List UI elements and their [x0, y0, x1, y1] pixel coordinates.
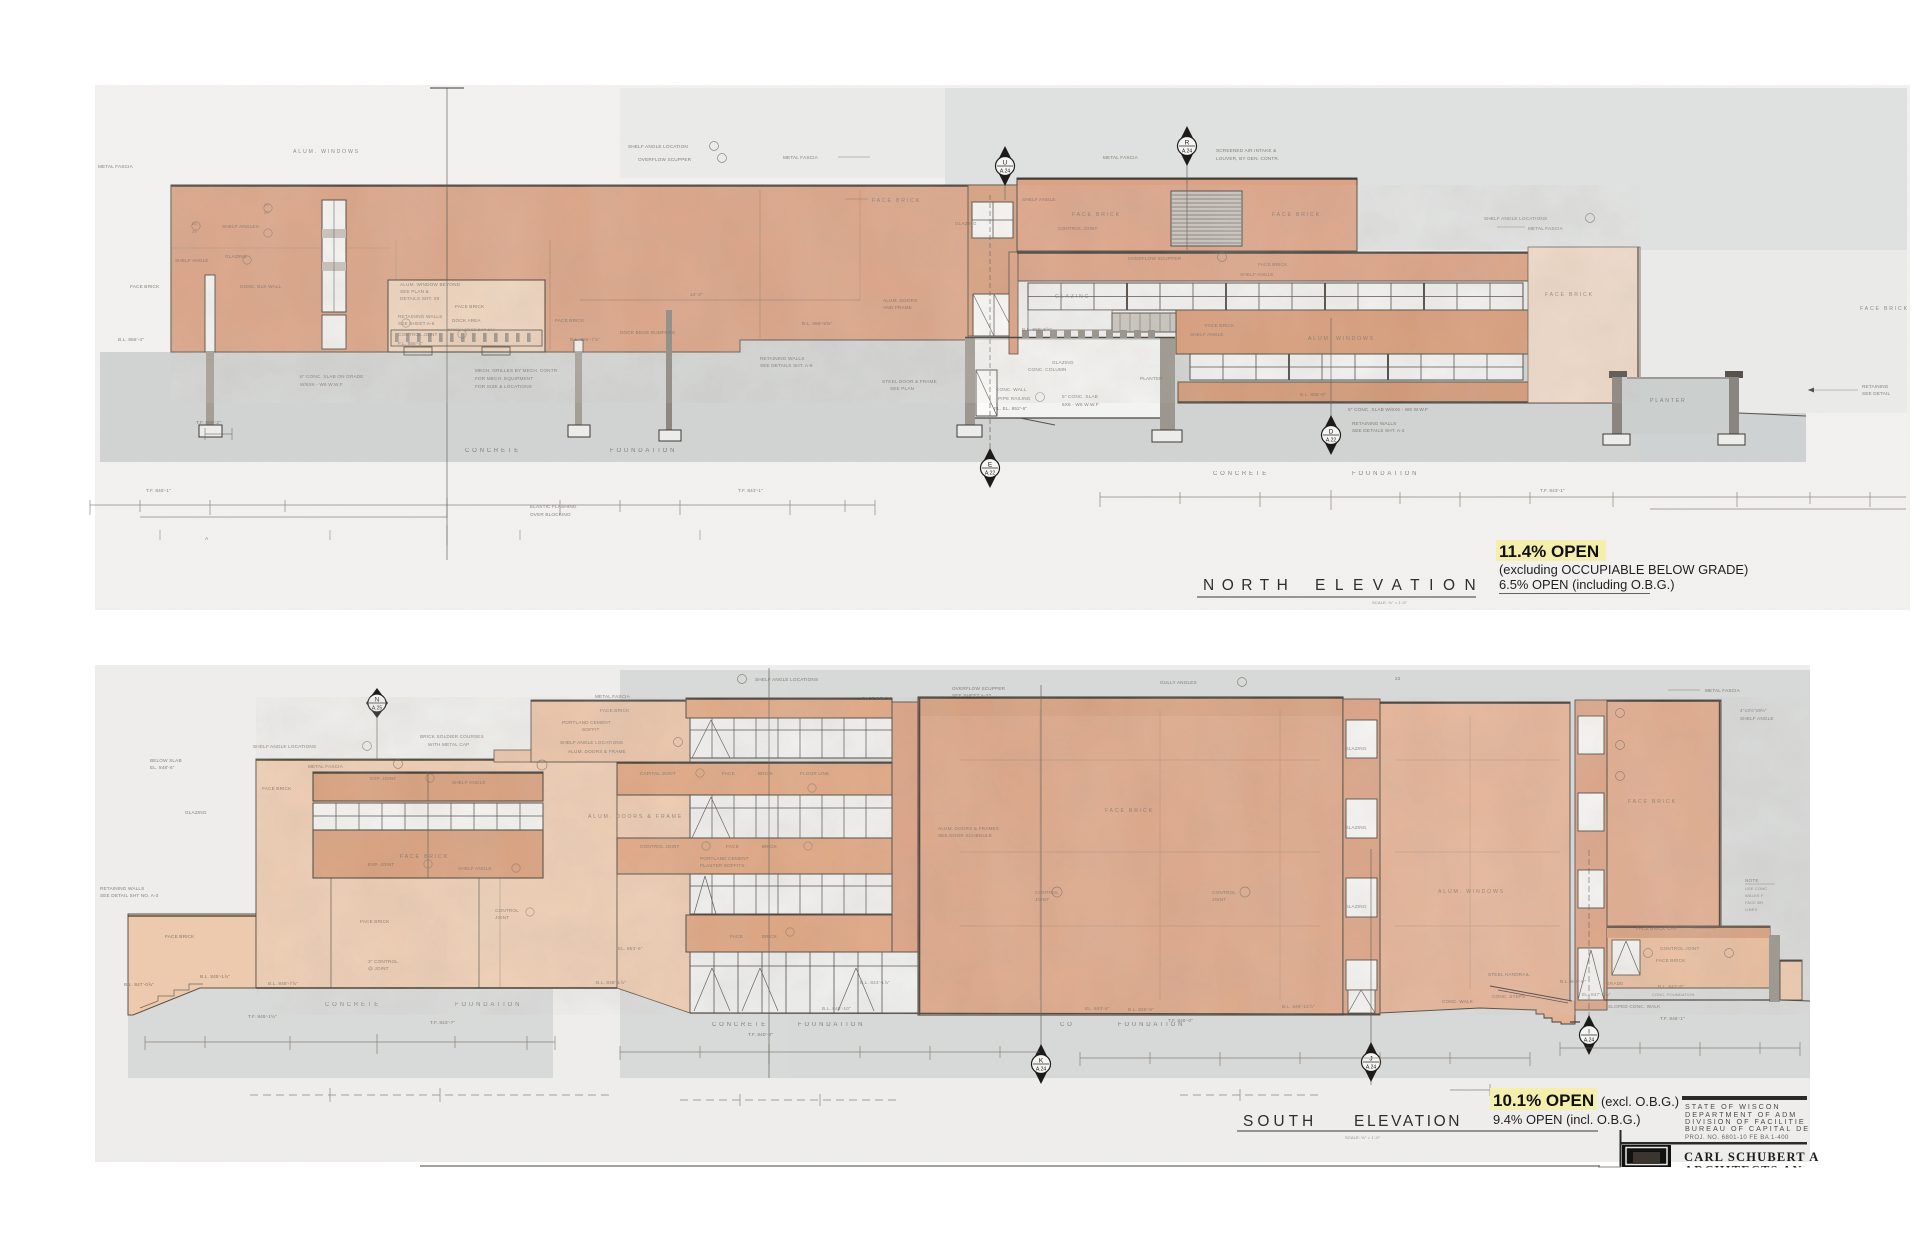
svg-text:T.F. 846'-0": T.F. 846'-0": [1168, 1018, 1193, 1023]
svg-text:FACE BRICK: FACE BRICK: [1272, 212, 1321, 218]
svg-text:A.22: A.22: [985, 471, 996, 477]
svg-text:ALUM. DOORS & FRAMES: ALUM. DOORS & FRAMES: [938, 826, 999, 831]
svg-text:FOUNDATION: FOUNDATION: [798, 1022, 865, 1028]
svg-text:B.L. 848'-1⅞": B.L. 848'-1⅞": [596, 980, 626, 985]
svg-text:@ JOINT: @ JOINT: [368, 966, 389, 971]
svg-text:A.24: A.24: [1000, 169, 1011, 175]
svg-text:GLAZING: GLAZING: [1345, 825, 1367, 830]
svg-text:GLAZING: GLAZING: [1345, 746, 1367, 751]
svg-text:PORTLAND CEMENT: PORTLAND CEMENT: [700, 856, 749, 861]
svg-text:GLAZING: GLAZING: [225, 254, 247, 259]
svg-text:BRICK SOLDIER COURSES: BRICK SOLDIER COURSES: [420, 734, 484, 739]
svg-text:SEE DOOR SCHEDULE: SEE DOOR SCHEDULE: [938, 833, 992, 838]
svg-text:SEE PLAN &: SEE PLAN &: [400, 289, 430, 294]
svg-text:B.L. 845'-0": B.L. 845'-0": [1560, 979, 1586, 984]
svg-text:CONCRETE: CONCRETE: [1213, 471, 1269, 477]
svg-text:T.F. 843'-1": T.F. 843'-1": [738, 488, 763, 493]
svg-text:BELOW SLAB: BELOW SLAB: [150, 758, 182, 763]
svg-text:FACE BRICK: FACE BRICK: [862, 696, 892, 701]
svg-text:RETAINING WALLS: RETAINING WALLS: [100, 886, 144, 891]
svg-text:ALUM. WINDOW BEYOND: ALUM. WINDOW BEYOND: [400, 282, 461, 287]
svg-text:CONCRETE: CONCRETE: [465, 448, 521, 454]
svg-text:RETAINING WALLS: RETAINING WALLS: [760, 356, 804, 361]
svg-text:9.4% OPEN (incl. O.B.G.): 9.4% OPEN (incl. O.B.G.): [1493, 1112, 1641, 1127]
svg-text:(excl. O.B.G.): (excl. O.B.G.): [1601, 1094, 1679, 1109]
svg-text:NORTH: NORTH: [1203, 577, 1295, 594]
svg-text:T.F. 855'-2": T.F. 855'-2": [196, 420, 221, 425]
svg-text:EXP. JOINT: EXP. JOINT: [370, 776, 396, 781]
svg-text:SHELF ANGLE: SHELF ANGLE: [458, 866, 492, 871]
svg-text:25: 25: [264, 202, 269, 207]
svg-text:CONC. STEPS: CONC. STEPS: [1492, 994, 1525, 999]
svg-text:SEE SHEET A-22: SEE SHEET A-22: [952, 693, 992, 698]
svg-text:STEEL HANDRAIL: STEEL HANDRAIL: [1488, 972, 1530, 977]
svg-text:BRICK: BRICK: [762, 844, 778, 849]
svg-text:FACE BRICK: FACE BRICK: [455, 304, 485, 309]
svg-text:SHELF ANGLE: SHELF ANGLE: [1240, 272, 1274, 277]
svg-text:RETAINING WALLS: RETAINING WALLS: [398, 314, 442, 319]
svg-text:FACE BRICK: FACE BRICK: [600, 708, 630, 713]
svg-text:OVERFLOW SCUPPER: OVERFLOW SCUPPER: [952, 686, 1006, 691]
svg-text:RETAINING: RETAINING: [1862, 384, 1889, 389]
svg-text:JOINT: JOINT: [1212, 897, 1226, 902]
svg-text:CONTROL JOINT: CONTROL JOINT: [1660, 946, 1700, 951]
svg-text:CONTROL JOINT: CONTROL JOINT: [398, 332, 438, 337]
svg-text:6.5% OPEN (including O.B.G.): 6.5% OPEN (including O.B.G.): [1499, 577, 1675, 592]
svg-text:3" CONTROL: 3" CONTROL: [368, 959, 398, 964]
svg-text:FACE: FACE: [730, 934, 743, 939]
svg-text:A.25: A.25: [372, 706, 383, 712]
svg-text:N: N: [375, 697, 380, 704]
svg-text:CONTROL JOINT: CONTROL JOINT: [640, 844, 680, 849]
svg-text:F.L. 866'-6": F.L. 866'-6": [398, 341, 423, 346]
svg-text:T.F. 840'-0": T.F. 840'-0": [748, 1032, 773, 1037]
svg-text:T.F. 846'-1": T.F. 846'-1": [1660, 1016, 1685, 1021]
svg-text:DOCK EDGE BUMPERS: DOCK EDGE BUMPERS: [620, 330, 675, 335]
svg-text:B.L. 845'-10": B.L. 845'-10": [822, 1006, 851, 1011]
svg-text:OVER BLOCKING: OVER BLOCKING: [530, 512, 571, 517]
svg-text:LINES: LINES: [1745, 907, 1757, 912]
svg-text:ALUM. WINDOWS: ALUM. WINDOWS: [1438, 889, 1505, 895]
svg-text:FACE BRICK: FACE BRICK: [1656, 958, 1686, 963]
svg-text:SEE DETAIL SHT NO. A-3: SEE DETAIL SHT NO. A-3: [100, 893, 159, 898]
svg-text:FACE BRICK: FACE BRICK: [1205, 323, 1235, 328]
svg-text:FOR SIZE & LOCATIONS: FOR SIZE & LOCATIONS: [475, 384, 532, 389]
svg-text:USE CONC: USE CONC: [1745, 886, 1767, 891]
svg-text:MECH. GRILLES BY MECH. CONTR.: MECH. GRILLES BY MECH. CONTR.: [475, 368, 559, 373]
svg-text:SHELF ANGLE: SHELF ANGLE: [175, 258, 209, 263]
svg-text:EXP. JOINT: EXP. JOINT: [368, 862, 394, 867]
svg-text:11.4% OPEN: 11.4% OPEN: [1499, 542, 1599, 561]
svg-text:I: I: [1588, 1029, 1590, 1036]
svg-text:CARL SCHUBERT A: CARL SCHUBERT A: [1684, 1150, 1819, 1164]
svg-text:DOCK AREA: DOCK AREA: [452, 318, 481, 323]
svg-text:CO: CO: [1060, 1022, 1075, 1028]
svg-text:ALUM. WINDOWS: ALUM. WINDOWS: [293, 149, 360, 155]
svg-text:SEE DETAILS SHT. A-6: SEE DETAILS SHT. A-6: [760, 363, 813, 368]
svg-text:SHELF ANGLE LOCATIONS: SHELF ANGLE LOCATIONS: [755, 677, 818, 682]
svg-text:CONC. WALK: CONC. WALK: [1442, 999, 1474, 1004]
svg-text:SEE DETAIL: SEE DETAIL: [1862, 391, 1890, 396]
svg-text:FOR MECH. EQUIPMENT: FOR MECH. EQUIPMENT: [475, 376, 533, 381]
svg-text:FACE BRICK: FACE BRICK: [555, 318, 585, 323]
svg-text:U: U: [1003, 160, 1008, 167]
svg-text:FACE BR: FACE BR: [1745, 900, 1763, 905]
svg-text:J: J: [1369, 1056, 1372, 1063]
svg-text:B.L. 846'-12⅞": B.L. 846'-12⅞": [1282, 1004, 1315, 1009]
svg-text:ALUM. WINDOWS: ALUM. WINDOWS: [1308, 336, 1375, 342]
svg-text:DETAILS SHT. 29: DETAILS SHT. 29: [400, 296, 440, 301]
svg-text:FACE BRICK: FACE BRICK: [1628, 799, 1677, 805]
svg-text:SLOPED CONC. WALK: SLOPED CONC. WALK: [1608, 1004, 1661, 1009]
svg-text:FL. EL. 852'-6": FL. EL. 852'-6": [994, 406, 1027, 411]
svg-text:BRICK: BRICK: [762, 934, 778, 939]
svg-text:JOINT: JOINT: [1035, 897, 1049, 902]
svg-text:METAL FASCIA: METAL FASCIA: [1705, 688, 1741, 693]
svg-text:K: K: [1039, 1058, 1044, 1065]
svg-text:GULLY ANGLES: GULLY ANGLES: [1160, 680, 1197, 685]
svg-text:A.24: A.24: [1584, 1038, 1595, 1044]
svg-text:B.L. 859'-0": B.L. 859'-0": [1300, 392, 1326, 397]
svg-text:GLAZING: GLAZING: [955, 221, 977, 226]
svg-text:B.L. 869'-5⅝": B.L. 869'-5⅝": [802, 321, 832, 326]
svg-text:B.L. 866'-7⅞": B.L. 866'-7⅞": [570, 337, 600, 342]
svg-text:FACE BRICK: FACE BRICK: [360, 919, 390, 924]
svg-text:FOUNDATION: FOUNDATION: [455, 1002, 522, 1008]
svg-text:FACE BRICK: FACE BRICK: [1258, 262, 1288, 267]
svg-text:PROJ. NO. 6801-10 FE BA 1-400: PROJ. NO. 6801-10 FE BA 1-400: [1685, 1135, 1789, 1141]
svg-text:FACE: FACE: [722, 771, 735, 776]
svg-text:SHELF ANGLES: SHELF ANGLES: [222, 224, 259, 229]
svg-text:PIPE RAILING: PIPE RAILING: [998, 396, 1031, 401]
svg-text:SHELF ANGLE LOCATIONS: SHELF ANGLE LOCATIONS: [1484, 216, 1547, 221]
svg-text:METAL FASCIA: METAL FASCIA: [783, 155, 819, 160]
svg-text:R: R: [1185, 140, 1190, 147]
svg-text:BRICK LEDGE BAR 6⅞": BRICK LEDGE BAR 6⅞": [448, 327, 496, 332]
svg-text:METAL FASCIA: METAL FASCIA: [308, 764, 344, 769]
svg-text:GRADE: GRADE: [1606, 981, 1623, 986]
svg-text:B.L. 848'-7⅞": B.L. 848'-7⅞": [268, 981, 298, 986]
svg-text:ALUM. DOORS: ALUM. DOORS: [883, 298, 917, 303]
svg-text:6X6 - W6 W.W.F: 6X6 - W6 W.W.F: [1062, 402, 1099, 407]
svg-text:METAL FASCIA: METAL FASCIA: [1528, 226, 1564, 231]
svg-text:CONCRETE: CONCRETE: [712, 1022, 768, 1028]
svg-text:WITH METAL CAP: WITH METAL CAP: [428, 742, 469, 747]
svg-text:4"x3½"x9½": 4"x3½"x9½": [1740, 707, 1767, 713]
svg-text:CONCRETE: CONCRETE: [325, 1002, 381, 1008]
svg-text:CONC. WALL: CONC. WALL: [996, 387, 1027, 392]
svg-text:ALUM. DOORS & FRAME: ALUM. DOORS & FRAME: [588, 814, 683, 820]
svg-text:B.L. 843'-8": B.L. 843'-8": [1658, 984, 1684, 989]
svg-text:PLANTER: PLANTER: [1650, 398, 1687, 404]
svg-text:NOTE: NOTE: [1745, 878, 1759, 883]
svg-text:SHELF ANGLE: SHELF ANGLE: [1740, 716, 1774, 721]
svg-text:SHELF ANGLE: SHELF ANGLE: [452, 780, 486, 785]
svg-text:SHELF ANGLE LOCATION: SHELF ANGLE LOCATION: [628, 144, 688, 149]
svg-text:METAL FASCIA: METAL FASCIA: [1103, 155, 1139, 160]
svg-text:SOUTH: SOUTH: [1243, 1113, 1317, 1130]
svg-text:SEE PLAN: SEE PLAN: [890, 386, 914, 391]
svg-text:5" CONC. SLAB: 5" CONC. SLAB: [1062, 394, 1098, 399]
svg-text:T.F. 843'-?": T.F. 843'-?": [430, 1020, 455, 1025]
svg-text:T.F. 845'-1½": T.F. 845'-1½": [248, 1013, 277, 1019]
svg-text:GLAZING: GLAZING: [1345, 904, 1367, 909]
svg-text:D: D: [1329, 429, 1334, 436]
svg-text:CONC. FOUNDATION: CONC. FOUNDATION: [1652, 992, 1695, 997]
svg-text:B.L. 847'-0⅞": B.L. 847'-0⅞": [124, 982, 154, 987]
svg-text:B.L. 869'-5⅝": B.L. 869'-5⅝": [1022, 327, 1052, 332]
svg-text:FACE BRICK: FACE BRICK: [872, 198, 921, 204]
svg-text:FACE BRICK: FACE BRICK: [130, 284, 160, 289]
svg-text:A.24: A.24: [1036, 1067, 1047, 1073]
svg-text:SCALE: ⅛" = 1'-0": SCALE: ⅛" = 1'-0": [1345, 1135, 1381, 1140]
svg-text:SEE DETAILS SHT. A-2: SEE DETAILS SHT. A-2: [1352, 428, 1405, 433]
svg-text:SCALE: ⅛" = 1'-0": SCALE: ⅛" = 1'-0": [1372, 600, 1408, 605]
svg-text:CONTROL: CONTROL: [1035, 890, 1059, 895]
svg-text:14'-2": 14'-2": [690, 292, 703, 297]
svg-text:STEEL DOOR & FRAME: STEEL DOOR & FRAME: [882, 379, 937, 384]
svg-text:W/6X6 - W6 W.W.F: W/6X6 - W6 W.W.F: [300, 382, 343, 387]
svg-text:22: 22: [1395, 676, 1401, 681]
svg-text:E: E: [988, 462, 993, 469]
svg-text:SEE SHEET A-6: SEE SHEET A-6: [398, 321, 435, 326]
svg-text:CONTROL JOINT: CONTROL JOINT: [1058, 226, 1098, 231]
svg-text:FACE BRICK: FACE BRICK: [262, 786, 292, 791]
svg-text:FACE BRICK CAP: FACE BRICK CAP: [1636, 926, 1677, 931]
svg-text:EL. 848'-6": EL. 848'-6": [150, 765, 175, 770]
svg-text:A.24: A.24: [1182, 149, 1193, 155]
svg-text:SHELF ANGLE: SHELF ANGLE: [1022, 197, 1056, 202]
svg-text:PLANTER: PLANTER: [1140, 376, 1163, 381]
svg-text:PORTLAND CEMENT: PORTLAND CEMENT: [562, 720, 611, 725]
svg-text:CONC. COLUMN: CONC. COLUMN: [1028, 367, 1067, 372]
svg-text:FACE: FACE: [726, 844, 739, 849]
svg-text:SCREENED AIR INTAKE &: SCREENED AIR INTAKE &: [1216, 148, 1277, 153]
svg-text:10.1% OPEN: 10.1% OPEN: [1493, 1091, 1594, 1110]
svg-text:FACE BRICK: FACE BRICK: [400, 854, 449, 860]
svg-text:EL. 847'-0⅞": EL. 847'-0⅞": [1582, 992, 1611, 997]
svg-text:CONTROL: CONTROL: [1212, 890, 1236, 895]
svg-text:SHELF ANGLE: SHELF ANGLE: [1190, 332, 1224, 337]
svg-text:CONTROL: CONTROL: [495, 908, 519, 913]
svg-text:OVERFLOW SCUPPER: OVERFLOW SCUPPER: [638, 157, 692, 162]
svg-text:ELEVATION: ELEVATION: [1315, 577, 1485, 594]
svg-text:SHELF ANGLE LOCATIONS: SHELF ANGLE LOCATIONS: [560, 740, 623, 745]
svg-text:FOUNDATION: FOUNDATION: [1352, 471, 1419, 477]
svg-text:A.22: A.22: [1326, 438, 1337, 444]
svg-text:FACE BRICK: FACE BRICK: [165, 934, 195, 939]
svg-text:T.F. 843'-1": T.F. 843'-1": [1540, 488, 1565, 493]
svg-text:METAL FASCIA: METAL FASCIA: [98, 164, 134, 169]
svg-text:FACE BRICK: FACE BRICK: [1545, 292, 1594, 298]
svg-text:EL. 853'-6": EL. 853'-6": [618, 946, 643, 951]
svg-text:PLASTER SOFFITS: PLASTER SOFFITS: [700, 863, 745, 868]
svg-text:BRICK: BRICK: [758, 771, 774, 776]
svg-text:EL. 843'-6": EL. 843'-6": [1085, 1006, 1110, 1011]
svg-text:ELASTIC FLASHING: ELASTIC FLASHING: [530, 504, 577, 509]
svg-text:B.L. 845'-6": B.L. 845'-6": [1128, 1007, 1154, 1012]
svg-text:GLAZING: GLAZING: [185, 810, 207, 815]
svg-text:BUREAU OF CAPITAL DE: BUREAU OF CAPITAL DE: [1685, 1124, 1810, 1133]
svg-text:B.L. 843'-1⅞": B.L. 843'-1⅞": [860, 980, 890, 985]
svg-text:JOINT: JOINT: [495, 915, 509, 920]
svg-text:AND FRAME: AND FRAME: [883, 305, 912, 310]
svg-text:ALUM. DOORS & FRAME: ALUM. DOORS & FRAME: [568, 749, 626, 754]
svg-text:GLAZING: GLAZING: [1055, 294, 1090, 300]
svg-text:A.24: A.24: [1366, 1065, 1377, 1071]
svg-text:SHELF ANGLE LOCATIONS: SHELF ANGLE LOCATIONS: [253, 744, 316, 749]
svg-text:CAPITAL JOINT: CAPITAL JOINT: [640, 771, 676, 776]
svg-text:LOUVER, BY GEN. CONTR.: LOUVER, BY GEN. CONTR.: [1216, 156, 1279, 161]
svg-text:B.L. 866'-4": B.L. 866'-4": [118, 337, 144, 342]
svg-text:ELEVATION: ELEVATION: [1354, 1113, 1462, 1130]
svg-text:8" CONC. SLAB ON GRADE: 8" CONC. SLAB ON GRADE: [300, 374, 364, 379]
svg-text:CONC. BLK WALL: CONC. BLK WALL: [240, 284, 282, 289]
svg-text:B.L. 845'-1⅞": B.L. 845'-1⅞": [200, 974, 230, 979]
svg-text:FACE BRICK: FACE BRICK: [1072, 212, 1121, 218]
svg-text:RETAINING WALLS: RETAINING WALLS: [1352, 421, 1396, 426]
svg-text:OVERFLOW SCUPPER: OVERFLOW SCUPPER: [1128, 256, 1182, 261]
svg-text:FACE BRICK: FACE BRICK: [1105, 808, 1154, 814]
svg-text:SOFFIT: SOFFIT: [582, 727, 600, 732]
svg-text:FOUNDATION: FOUNDATION: [610, 448, 677, 454]
svg-text:FACE BRICK: FACE BRICK: [1860, 306, 1909, 312]
svg-text:T.F. 845'-1": T.F. 845'-1": [146, 488, 171, 493]
svg-text:(excluding OCCUPIABLE BELOW GR: (excluding OCCUPIABLE BELOW GRADE): [1499, 562, 1748, 577]
svg-text:FLOOR LINE: FLOOR LINE: [800, 771, 829, 776]
svg-text:GLAZING: GLAZING: [1052, 360, 1074, 365]
svg-text:WALKS F: WALKS F: [1745, 893, 1764, 898]
svg-text:METAL FASCIA: METAL FASCIA: [595, 694, 631, 699]
svg-text:5" CONC. SLAB W/6X6 - W6 W.W.F: 5" CONC. SLAB W/6X6 - W6 W.W.F: [1348, 407, 1428, 412]
